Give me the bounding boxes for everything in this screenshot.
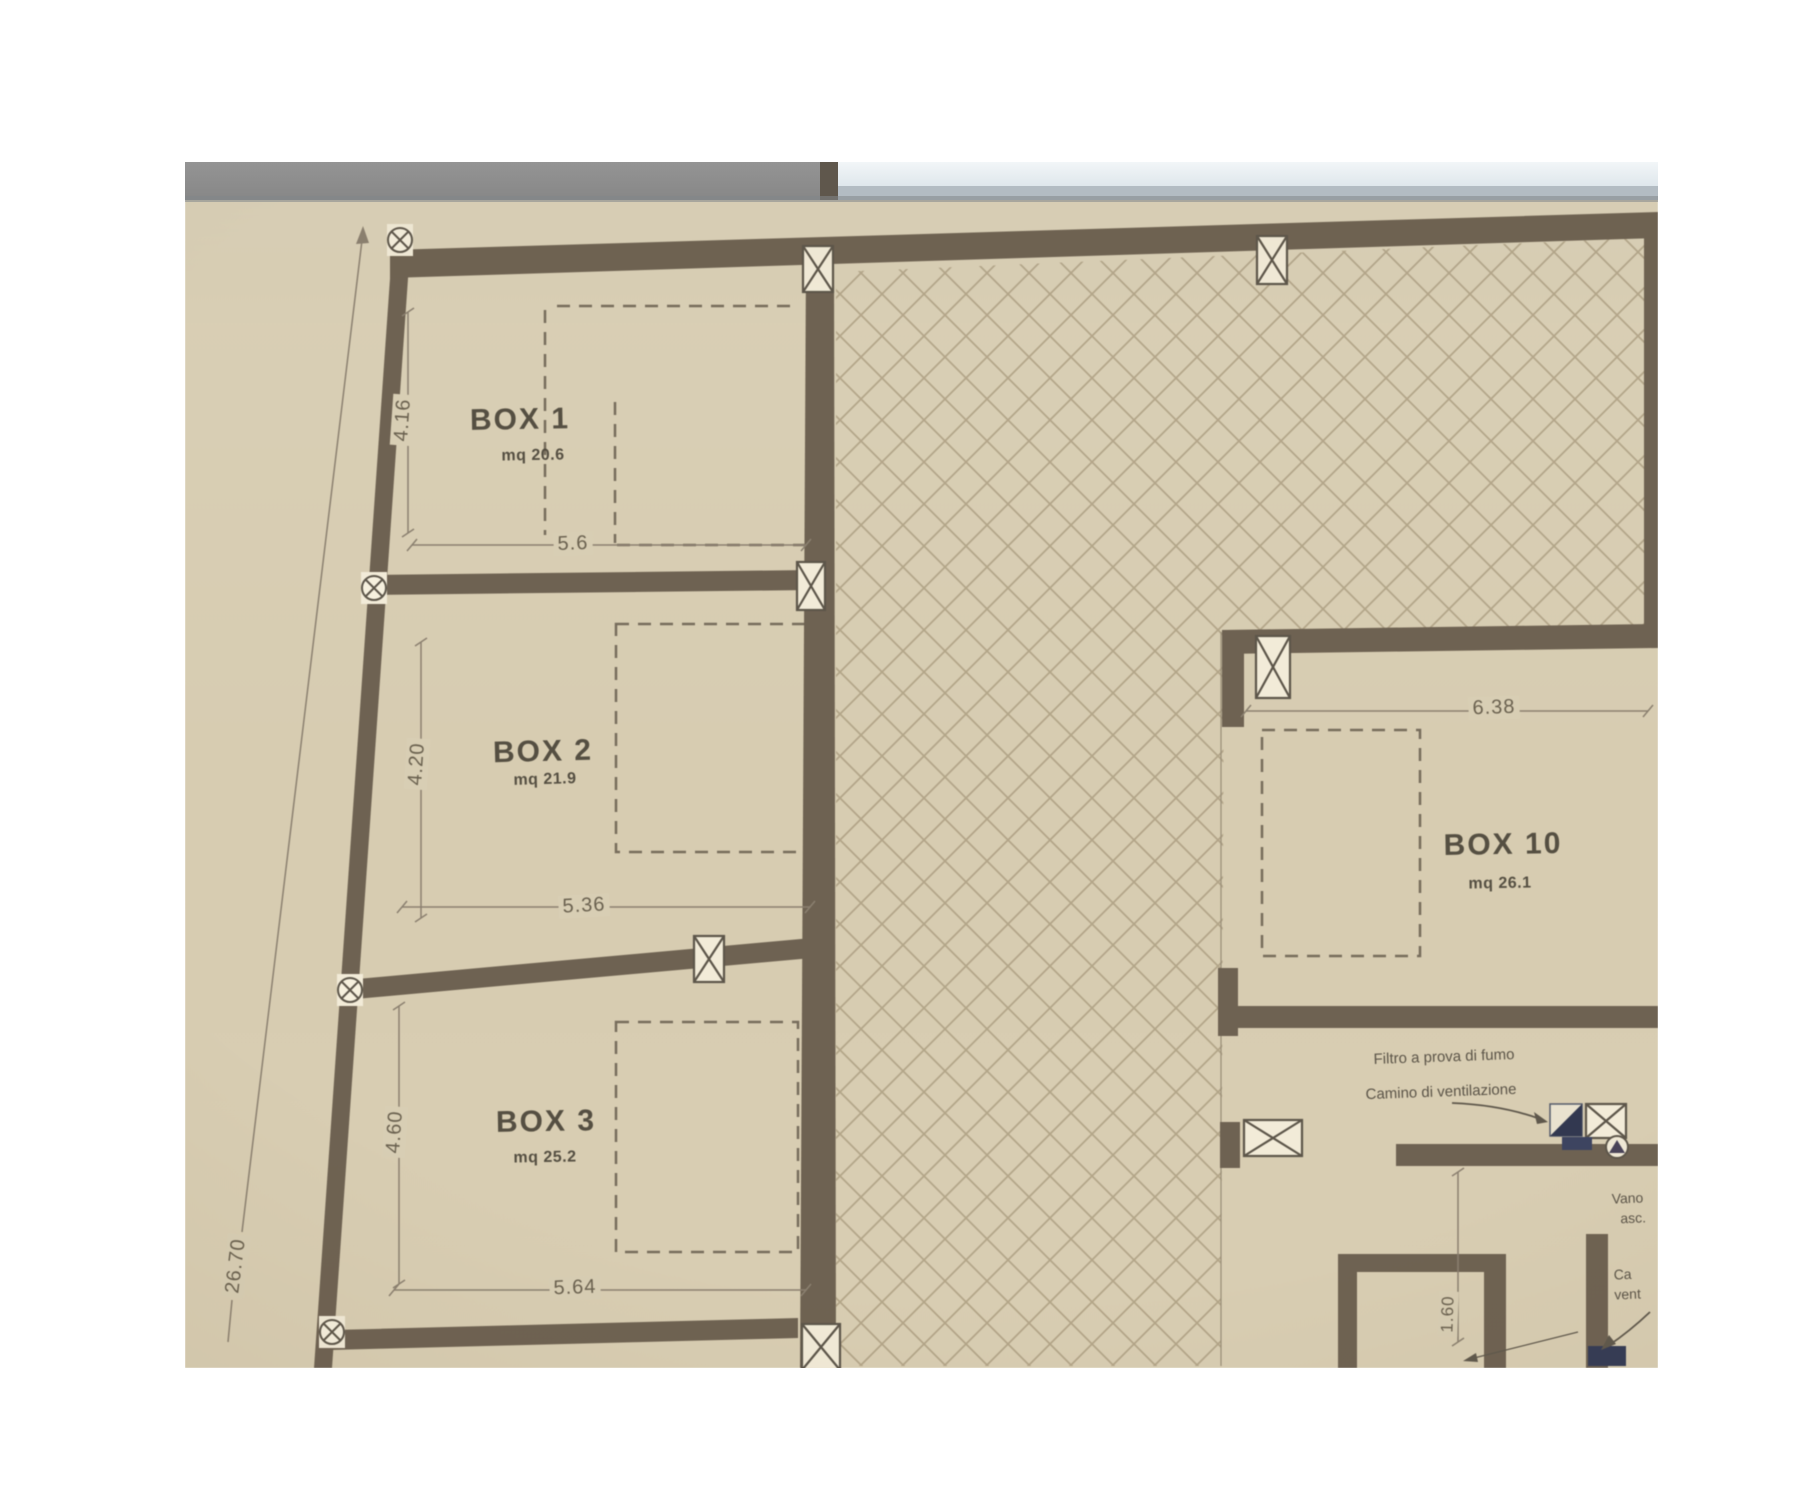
dim-box1-width: 5.6: [553, 532, 593, 556]
dim-box2-depth: 4.20: [404, 738, 430, 790]
dim-box3-width: 5.64: [549, 1276, 601, 1301]
shaft-dark-marker: [1588, 1346, 1626, 1366]
dim-box3-depth: 4.60: [382, 1106, 408, 1158]
vent-shaft-marker: [1562, 1137, 1592, 1150]
dim-box10-width: 6.38: [1468, 696, 1520, 721]
dim-box1-depth: 4.16: [390, 394, 416, 446]
floor-plan-drawing: [0, 0, 1800, 1494]
note-vano-line2: asc.: [1612, 1208, 1646, 1229]
note-camino2-line1: Ca: [1613, 1264, 1640, 1285]
window-chrome-fragment-dark: [185, 162, 835, 200]
box3-label: BOX 3: [496, 1104, 597, 1140]
page-margin-bottom: [0, 1368, 1800, 1494]
dim-box2-width: 5.36: [558, 893, 610, 919]
note-camino2: Ca vent: [1613, 1264, 1641, 1305]
screenshot: BOX 1 mq 20.6 BOX 2 mq 21.9 BOX 3 mq 25.…: [0, 0, 1800, 1494]
box2-area: mq 21.9: [513, 770, 577, 790]
box10-label: BOX 10: [1443, 827, 1562, 863]
page-margin-top: [0, 0, 1800, 162]
note-vano-line1: Vano: [1611, 1187, 1645, 1208]
note-camino2-line2: vent: [1614, 1284, 1641, 1305]
window-chrome-fragment-light: [838, 162, 1658, 186]
box1-label: BOX 1: [470, 402, 571, 438]
floor-plan-photo: BOX 1 mq 20.6 BOX 2 mq 21.9 BOX 3 mq 25.…: [0, 0, 1800, 1494]
box10-area: mq 26.1: [1468, 874, 1531, 893]
smoke-filter-marker: [1550, 1104, 1582, 1136]
window-chrome-notch: [820, 162, 838, 200]
page-margin-right: [1658, 0, 1800, 1494]
box1-area: mq 20.6: [501, 446, 564, 465]
hatched-driveway-area: [836, 238, 1646, 1366]
window-chrome-divider: [185, 196, 1658, 202]
duct-circle-marker: [1606, 1136, 1628, 1158]
note-vano: Vano asc.: [1611, 1187, 1646, 1229]
box3-area: mq 25.2: [513, 1148, 576, 1167]
page-margin-left: [0, 0, 185, 1494]
dim-shaft: 1.60: [1437, 1291, 1459, 1337]
box2-label: BOX 2: [493, 734, 594, 771]
